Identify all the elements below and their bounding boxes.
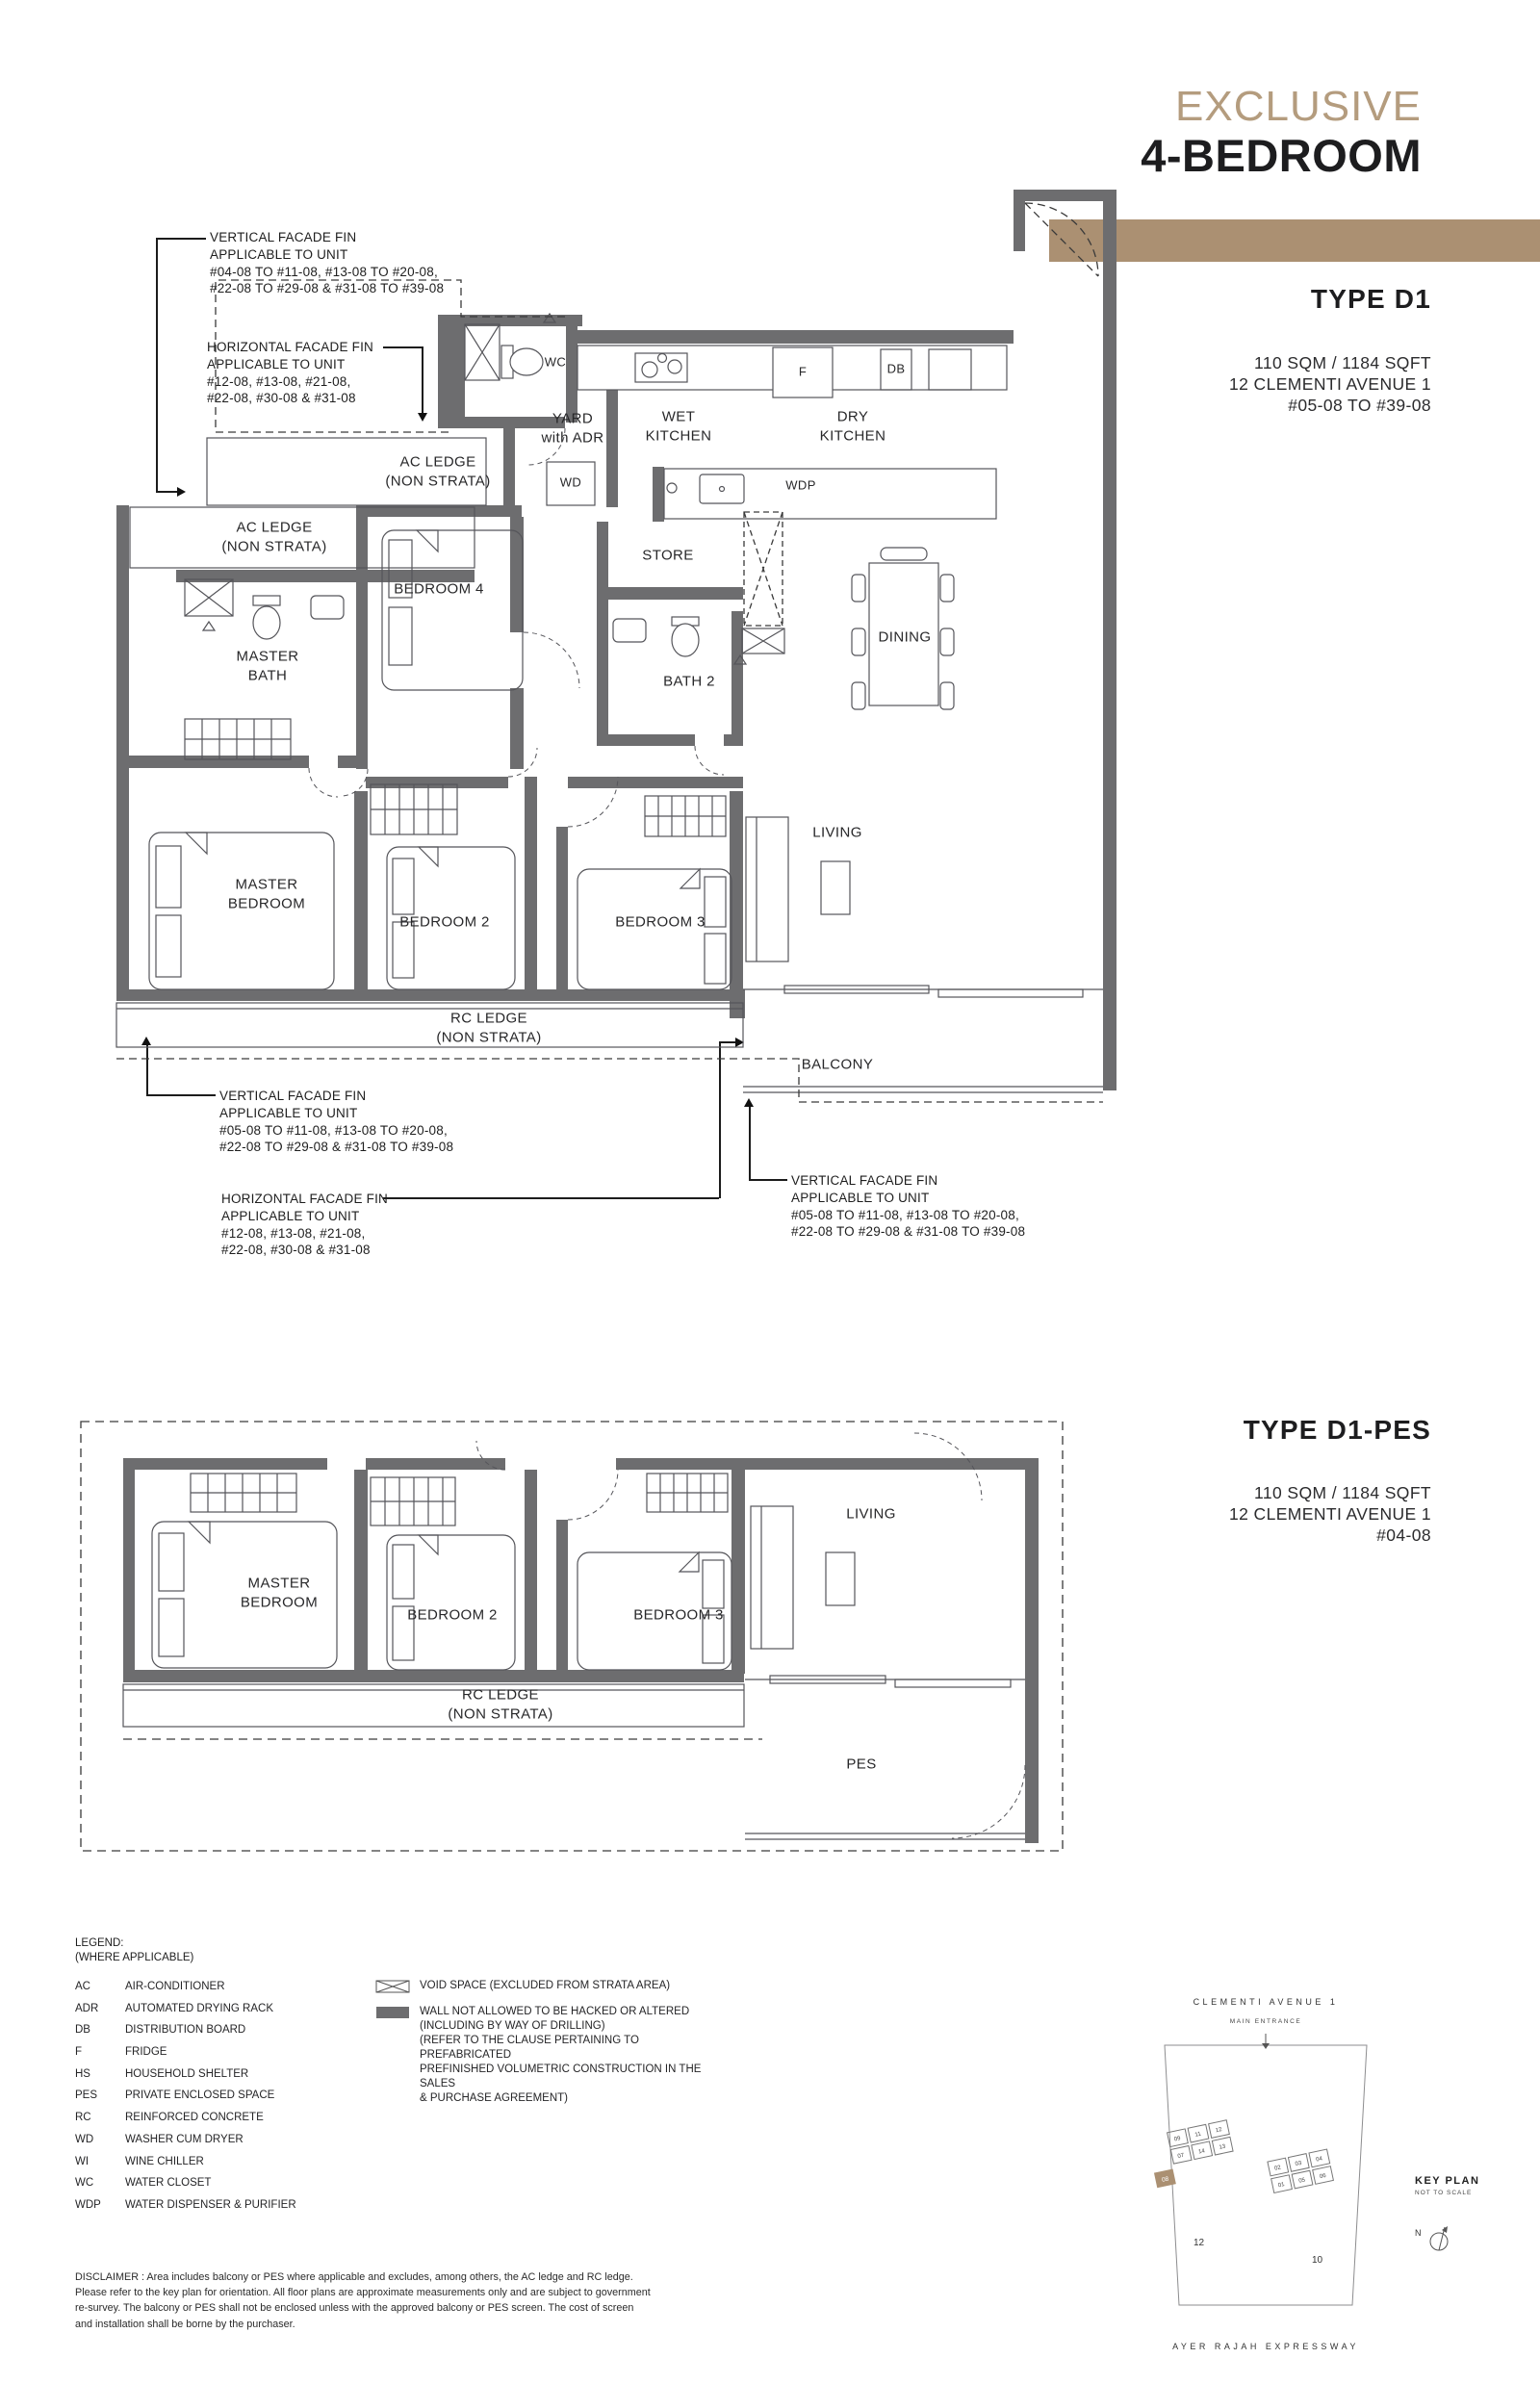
legend-title: LEGEND: (WHERE APPLICABLE): [75, 1936, 193, 1965]
legend-item: PESPRIVATE ENCLOSED SPACE: [75, 2089, 296, 2112]
legend-item: WDWASHER CUM DRYER: [75, 2134, 296, 2156]
floorplan-brochure-page: EXCLUSIVE 4-BEDROOM TYPE D1 110 SQM / 11…: [0, 0, 1540, 2384]
key-plan-scale-note: NOT TO SCALE: [1415, 2190, 1472, 2196]
legend-void-space: VOID SPACE (EXCLUDED FROM STRATA AREA): [375, 1979, 722, 1996]
hack-wall-icon: [375, 2005, 420, 2106]
legend-item: WIWINE CHILLER: [75, 2156, 296, 2178]
key-plan-road-top: CLEMENTI AVENUE 1: [1121, 1997, 1410, 2007]
block-10-label: 10: [1312, 2255, 1322, 2266]
room-label-yard: YARD with ADR: [542, 410, 604, 448]
accent-bar: [1049, 219, 1540, 262]
room-label-bedroom-3: BEDROOM 3: [615, 912, 706, 932]
room-label-rc-ledge: RC LEDGE (NON STRATA): [436, 1010, 541, 1047]
block-10-cluster: 02 03 04 01 05 06: [1268, 2149, 1333, 2192]
legend-item: WDPWATER DISPENSER & PURIFIER: [75, 2199, 296, 2221]
key-plan-main-entrance: MAIN ENTRANCE: [1121, 2018, 1410, 2025]
strata-boundary: [81, 1422, 1063, 1851]
fixtures: [123, 1474, 1025, 1839]
svg-text:06: 06: [1319, 2173, 1326, 2180]
room-label-fridge: F: [799, 365, 807, 381]
legend-item: RCREINFORCED CONCRETE: [75, 2112, 296, 2134]
legend-item: FFRIDGE: [75, 2046, 296, 2068]
block-12-cluster: 09 11 12 07 14 13 08: [1146, 2120, 1237, 2188]
legend-wall-note: WALL NOT ALLOWED TO BE HACKED OR ALTERED…: [375, 2005, 722, 2106]
room-label-pes-living: LIVING: [846, 1504, 896, 1524]
block-12-label: 12: [1193, 2238, 1204, 2248]
room-label-pes-bedroom-2: BEDROOM 2: [407, 1605, 498, 1625]
room-label-pes-master-bedroom: MASTER BEDROOM: [241, 1575, 318, 1612]
legend-item: DBDISTRIBUTION BOARD: [75, 2024, 296, 2046]
svg-text:07: 07: [1177, 2153, 1185, 2160]
room-label-master-bath: MASTER BATH: [237, 648, 299, 685]
key-plan-drawing: 09 11 12 07 14 13 08 02 03 04 01 05 06: [1121, 2032, 1526, 2369]
disclaimer-text: DISCLAIMER : Area includes balcony or PE…: [75, 2269, 653, 2332]
legend-item: HSHOUSEHOLD SHELTER: [75, 2068, 296, 2090]
north-label: N: [1415, 2228, 1422, 2238]
north-compass-icon: [1430, 2226, 1448, 2250]
room-label-living: LIVING: [812, 823, 862, 842]
svg-text:11: 11: [1194, 2132, 1202, 2139]
room-label-ac-ledge-left: AC LEDGE (NON STRATA): [221, 519, 326, 556]
room-label-wdp: WDP: [785, 478, 816, 495]
room-label-pes-rc-ledge: RC LEDGE (NON STRATA): [448, 1686, 552, 1724]
svg-text:13: 13: [1219, 2143, 1226, 2150]
room-label-bath-2: BATH 2: [663, 672, 715, 691]
legend-item: ADRAUTOMATED DRYING RACK: [75, 2003, 296, 2025]
leader-line: [749, 1107, 751, 1180]
room-label-wd: WD: [560, 475, 581, 492]
room-label-db: DB: [887, 362, 906, 378]
svg-text:03: 03: [1295, 2161, 1302, 2167]
room-label-pes: PES: [846, 1755, 876, 1774]
svg-text:01: 01: [1277, 2182, 1285, 2189]
svg-text:14: 14: [1198, 2148, 1206, 2155]
annotation-horizontal-fin-bottom: HORIZONTAL FACADE FIN APPLICABLE TO UNIT…: [221, 1191, 388, 1259]
room-label-ac-ledge-top: AC LEDGE (NON STRATA): [385, 453, 490, 491]
legend-list: ACAIR-CONDITIONER ADRAUTOMATED DRYING RA…: [75, 1981, 296, 2221]
leader-line: [383, 1197, 719, 1199]
type-d1-info: 110 SQM / 1184 SQFT 12 CLEMENTI AVENUE 1…: [1229, 352, 1431, 416]
room-label-dry-kitchen: DRY KITCHEN: [820, 408, 886, 446]
room-label-bedroom-4: BEDROOM 4: [394, 579, 484, 599]
walls: [116, 190, 1116, 1090]
room-label-wet-kitchen: WET KITCHEN: [646, 408, 712, 446]
page-kicker: EXCLUSIVE: [1175, 83, 1422, 131]
type-d1-heading: TYPE D1: [1311, 284, 1431, 315]
room-label-dining: DINING: [879, 628, 932, 647]
room-label-store: STORE: [642, 546, 693, 565]
svg-text:05: 05: [1298, 2177, 1306, 2184]
legend-symbols: VOID SPACE (EXCLUDED FROM STRATA AREA) W…: [375, 1979, 722, 2115]
svg-text:12: 12: [1215, 2127, 1222, 2134]
leader-line: [749, 1179, 787, 1181]
type-d1-pes-heading: TYPE D1-PES: [1244, 1415, 1431, 1446]
void-space-icon: [375, 1979, 420, 1996]
room-label-bedroom-2: BEDROOM 2: [399, 912, 490, 932]
key-plan-label: KEY PLAN: [1415, 2175, 1479, 2187]
annotation-vertical-fin-bottom-right: VERTICAL FACADE FIN APPLICABLE TO UNIT #…: [791, 1172, 1025, 1241]
room-label-wc: WC: [545, 355, 566, 372]
svg-text:02: 02: [1274, 2165, 1282, 2171]
legend-item: ACAIR-CONDITIONER: [75, 1981, 296, 2003]
floor-plan-type-d1-pes-drawing: [77, 1418, 1068, 1856]
page-title: 4-BEDROOM: [1141, 129, 1422, 182]
room-label-master-bedroom: MASTER BEDROOM: [228, 876, 305, 913]
room-label-balcony: BALCONY: [802, 1055, 874, 1074]
svg-text:09: 09: [1173, 2136, 1181, 2142]
legend-item: WCWATER CLOSET: [75, 2177, 296, 2199]
svg-text:04: 04: [1316, 2156, 1323, 2163]
room-label-pes-bedroom-3: BEDROOM 3: [633, 1605, 724, 1625]
type-d1-pes-info: 110 SQM / 1184 SQFT 12 CLEMENTI AVENUE 1…: [1229, 1482, 1431, 1546]
key-plan: CLEMENTI AVENUE 1 MAIN ENTRANCE 09 11 12…: [1121, 1997, 1526, 2363]
walls: [123, 1458, 1039, 1843]
key-plan-road-bottom: AYER RAJAH EXPRESSWAY: [1121, 2342, 1410, 2351]
